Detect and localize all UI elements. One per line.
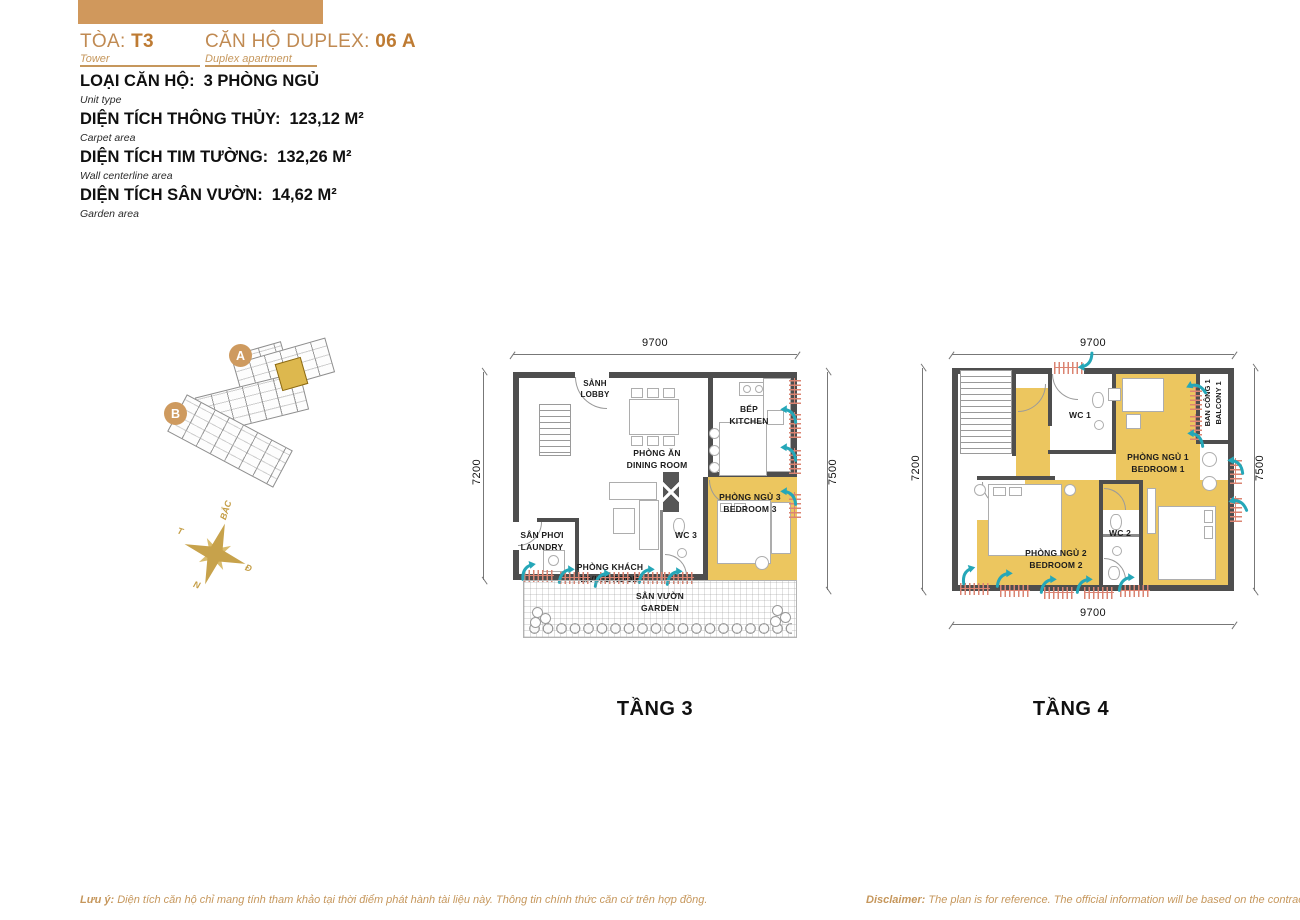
room-label-vn: SÂN VƯỜN: [524, 591, 796, 603]
coffee-table-icon: [613, 508, 635, 534]
compass: BẮC T Đ N: [165, 502, 265, 606]
wall-segment: [977, 476, 1055, 480]
unit-value: 06 A: [375, 31, 416, 52]
nightstand-icon: [1064, 484, 1076, 496]
dim-line: [922, 368, 923, 591]
nightstand-icon: [974, 484, 986, 496]
pillow-icon: [1009, 487, 1022, 496]
stairs-icon: [539, 404, 571, 456]
room-label-en: LAUNDRY: [513, 542, 571, 554]
pillow-icon: [1204, 510, 1213, 523]
burner-icon: [743, 385, 751, 393]
garden-area: SÂN VƯỜN GARDEN: [523, 580, 797, 638]
unit-label: CĂN HỘ DUPLEX:: [205, 31, 370, 52]
room-label-en: BEDROOM 2: [998, 560, 1114, 572]
chair-icon: [647, 388, 659, 398]
room-label-en: KITCHEN: [709, 416, 789, 428]
spec-label: DIỆN TÍCH SÂN VƯỜN:: [80, 186, 263, 204]
stool-icon: [709, 462, 720, 473]
vent-arrow-icon: [1226, 492, 1250, 516]
room-label-laundry: SÂN PHƠI LAUNDRY: [513, 530, 571, 554]
compass-south-label: N: [192, 579, 201, 591]
spec-sublabel: Unit type: [80, 94, 121, 106]
vent-arrow-icon: [1074, 574, 1094, 594]
dining-table-icon: [629, 399, 679, 435]
side-table-icon: [1202, 476, 1217, 491]
vent-arrow-icon: [994, 568, 1014, 588]
room-label-kitchen: BẾP KITCHEN: [709, 404, 789, 428]
sink-icon: [677, 548, 687, 558]
footer-note: Lưu ý: Diện tích căn hộ chỉ mang tính th…: [80, 894, 707, 906]
vent-arrow-icon: [516, 558, 539, 581]
spec-label: DIỆN TÍCH THÔNG THỦY:: [80, 110, 280, 128]
header-accent-bar: [78, 0, 323, 24]
room-label-vn: SẢNH: [571, 378, 619, 389]
room-label-vn: PHÒNG ĂN: [607, 448, 707, 460]
vent-arrow-icon: [779, 404, 799, 424]
room-label-en: BALCONY 1: [1214, 371, 1225, 435]
spec-label: DIỆN TÍCH TIM TƯỜNG:: [80, 148, 268, 166]
vent-arrow-icon: [1116, 572, 1136, 592]
chair-icon: [631, 436, 643, 446]
wall-segment: [1099, 480, 1143, 484]
compass-rose-icon: [175, 514, 256, 595]
wardrobe-icon: [1147, 488, 1156, 534]
unit-underline: [205, 65, 317, 67]
footer-note-label: Lưu ý:: [80, 894, 114, 906]
plant-icon: [540, 613, 551, 624]
tower-marker-a: A: [229, 344, 252, 367]
stool-icon: [709, 428, 720, 439]
desk-icon: [1122, 378, 1164, 412]
vent-arrow-icon: [1186, 428, 1206, 448]
floor4-title: TẦNG 4: [930, 698, 1212, 721]
pillow-icon: [1204, 526, 1213, 539]
spec-value: 3 PHÒNG NGỦ: [204, 72, 320, 90]
spec-label: LOẠI CĂN HỘ:: [80, 72, 195, 90]
compass-east-label: Đ: [244, 562, 253, 574]
room-label-bedroom2: PHÒNG NGỦ 2 BEDROOM 2: [998, 548, 1114, 572]
pillow-icon: [993, 487, 1006, 496]
floor3-dim-top: 9700: [513, 337, 797, 349]
footer-disclaimer-label: Disclaimer:: [866, 894, 925, 906]
kitchen-island-icon: [719, 422, 767, 476]
floor3-title: TẦNG 3: [513, 698, 797, 721]
spec-sublabel: Wall centerline area: [80, 170, 173, 182]
floor3-dim-right: 7500: [827, 437, 839, 507]
footer-disclaimer: Disclaimer: The plan is for reference. T…: [866, 894, 1300, 906]
tower-underline: [80, 65, 200, 67]
chair-icon: [663, 388, 675, 398]
room-label-vn: BẾP: [709, 404, 789, 416]
tower-marker-b: B: [164, 402, 187, 425]
vent-arrow-icon: [1075, 351, 1097, 373]
plant-icon: [770, 616, 781, 627]
sofa-icon: [609, 482, 657, 500]
room-label-en: BEDROOM 1: [1100, 464, 1216, 476]
room-label-garden: SÂN VƯỜN GARDEN: [524, 591, 796, 615]
tower-value: T3: [131, 31, 154, 52]
floor3-plan: SẢNH LOBBY PHÒNG ĂN DINING ROOM BẾP KITC…: [513, 372, 797, 580]
door-arc: [1052, 374, 1078, 400]
vent-arrow-icon: [779, 486, 799, 506]
stool-icon: [709, 445, 720, 456]
stool-icon: [755, 556, 769, 570]
wall-segment: [1112, 368, 1116, 454]
burner-icon: [755, 385, 763, 393]
unit-title: CĂN HỘ DUPLEX: 06 A: [205, 31, 416, 53]
spec-value: 132,26 M²: [277, 148, 351, 166]
wall-segment: [952, 368, 958, 591]
dim-line: [952, 624, 1234, 625]
chair-icon: [663, 436, 675, 446]
shaft-icon: [663, 472, 679, 512]
wall-segment: [537, 518, 579, 522]
unit-sublabel: Duplex apartment: [205, 53, 292, 65]
wall-segment: [1012, 368, 1016, 456]
room-label-wc3: WC 3: [664, 530, 708, 542]
tower-label: TÒA:: [80, 31, 126, 52]
bed-icon: [988, 484, 1062, 556]
room-label-vn: BAN CÔNG 1: [1203, 371, 1214, 435]
room-label-en: LOBBY: [571, 389, 619, 400]
spec-value: 14,62 M²: [272, 186, 337, 204]
room-label-vn: SÂN PHƠI: [513, 530, 571, 542]
room-label-vn: PHÒNG NGỦ 2: [998, 548, 1114, 560]
floor4-dim-top: 9700: [952, 337, 1234, 349]
spec-sublabel: Garden area: [80, 208, 139, 220]
compass-west-label: T: [176, 525, 184, 536]
toilet-icon: [1092, 392, 1104, 408]
table-icon: [1126, 414, 1141, 429]
plant-icon: [530, 617, 541, 628]
floor4-dim-right: 7500: [1254, 433, 1266, 503]
sofa-icon: [639, 500, 659, 550]
bush-row-icon: [528, 622, 792, 635]
room-label-en: GARDEN: [524, 603, 796, 615]
dim-line: [513, 354, 797, 355]
room-label-en: DINING ROOM: [607, 460, 707, 472]
spec-row: LOẠI CĂN HỘ:3 PHÒNG NGỦ: [80, 72, 319, 91]
wall-segment: [1139, 538, 1143, 585]
bed-icon: [1158, 506, 1216, 580]
floor4-dim-left: 7200: [910, 433, 922, 503]
room-label-wc2: WC 2: [1098, 528, 1142, 540]
chair-icon: [1108, 388, 1121, 401]
room-label-wc1: WC 1: [1050, 410, 1110, 422]
floor4-dim-bottom: 9700: [952, 607, 1234, 619]
room-label-vn: PHÒNG NGỦ 1: [1100, 452, 1216, 464]
footer-disclaimer-text: The plan is for reference. The official …: [928, 894, 1300, 906]
window-mark: [789, 378, 801, 404]
footer-note-text: Diện tích căn hộ chỉ mang tính tham khảo…: [117, 894, 707, 906]
vent-arrow-icon: [779, 442, 799, 462]
spec-row: DIỆN TÍCH SÂN VƯỜN:14,62 M²: [80, 186, 337, 205]
tower-title: TÒA: T3: [80, 31, 154, 53]
room-label-lobby: SẢNH LOBBY: [571, 378, 619, 400]
vent-arrow-icon: [1226, 455, 1246, 475]
room-label-balcony1: BAN CÔNG 1 BALCONY 1: [1203, 371, 1225, 435]
room-label-bedroom1: PHÒNG NGỦ 1 BEDROOM 1: [1100, 452, 1216, 476]
key-plan: A B: [158, 332, 374, 508]
dim-line: [483, 372, 484, 580]
spec-row: DIỆN TÍCH THÔNG THỦY:123,12 M²: [80, 110, 364, 129]
stairs-icon: [960, 370, 1012, 454]
spec-sublabel: Carpet area: [80, 132, 135, 144]
wall-segment: [513, 372, 797, 378]
spec-row: DIỆN TÍCH TIM TƯỜNG:132,26 M²: [80, 148, 351, 167]
plant-icon: [780, 612, 791, 623]
room-label-dining: PHÒNG ĂN DINING ROOM: [607, 448, 707, 472]
chair-icon: [647, 436, 659, 446]
floor3-dim-left: 7200: [471, 437, 483, 507]
chair-icon: [631, 388, 643, 398]
spec-value: 123,12 M²: [289, 110, 363, 128]
tower-sublabel: Tower: [80, 53, 110, 65]
vent-arrow-icon: [1038, 574, 1058, 594]
